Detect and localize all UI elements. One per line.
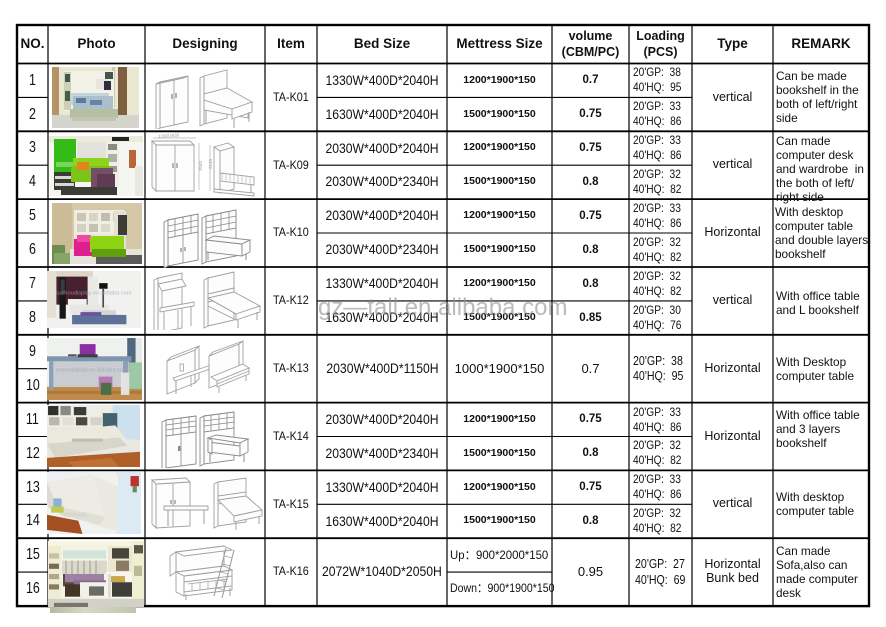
svg-text:suzhoudisplay.en.alibaba.com: suzhoudisplay.en.alibaba.com bbox=[55, 291, 132, 297]
svg-text:somedisplay.en.alibaba.com: somedisplay.en.alibaba.com bbox=[55, 368, 128, 374]
svg-text:2040: 2040 bbox=[198, 160, 203, 171]
svg-text:2140: 2140 bbox=[208, 158, 213, 169]
